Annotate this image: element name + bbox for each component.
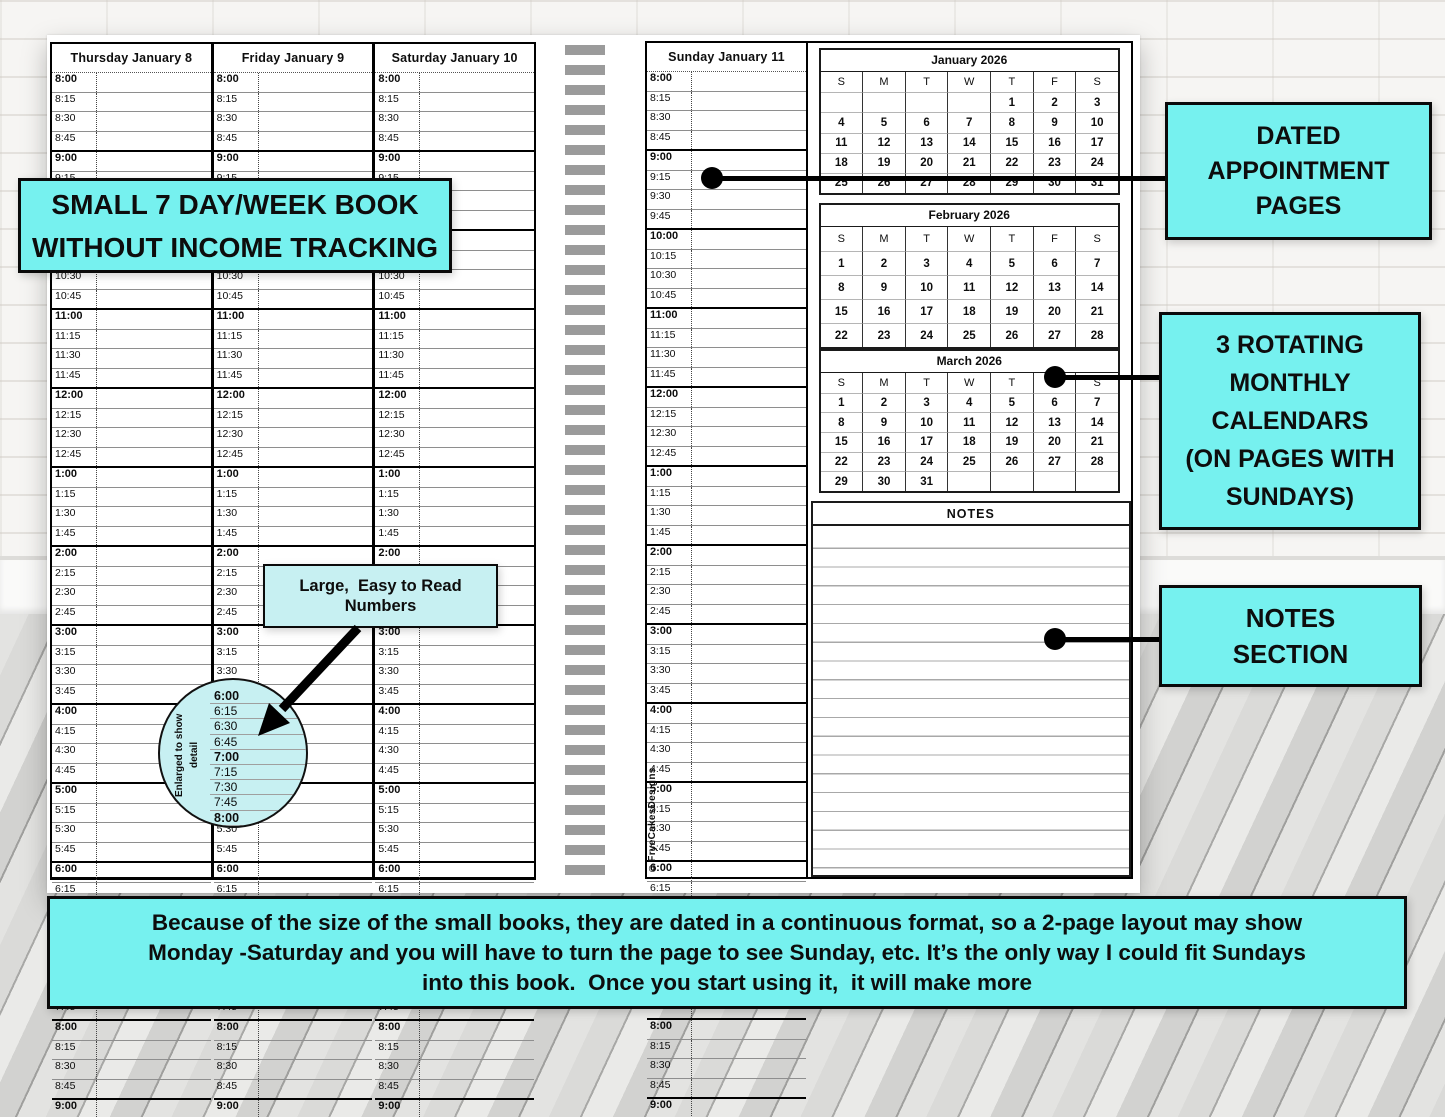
time-slot: 12:30 (375, 427, 534, 447)
time-label: 9:15 (647, 171, 692, 190)
calendar-day-cell: 5 (991, 393, 1034, 413)
time-slot: 8:30 (214, 1059, 373, 1079)
calendar-day-cell: 3 (906, 393, 949, 413)
time-slot: 5:45 (647, 841, 806, 861)
time-slot: 8:30 (375, 111, 534, 131)
time-slot: 1:00 (647, 465, 806, 486)
time-label: 3:30 (647, 664, 692, 683)
calendar-weekday-cell: T (991, 373, 1034, 393)
calendar-day-cell: 31 (906, 471, 949, 491)
time-label: 10:45 (647, 289, 692, 308)
time-slot: 8:45 (214, 131, 373, 151)
calendar-week-row: 1234567 (821, 393, 1119, 413)
time-label: 8:15 (375, 93, 420, 112)
magnifier-caption: Enlarged to show detail (172, 702, 206, 808)
calendar-day-cell: 2 (863, 393, 906, 413)
time-label: 8:15 (52, 93, 97, 112)
calendar-weekday-cell: S (821, 227, 864, 251)
time-label: 12:45 (647, 447, 692, 466)
calendar-january: January 2026 SMTWTFS12345678910111213141… (819, 48, 1121, 195)
time-slot: 5:30 (375, 822, 534, 842)
time-slot: 1:30 (375, 506, 534, 526)
calendar-day-cell: 4 (948, 251, 991, 275)
time-slot: 11:45 (647, 367, 806, 387)
calendar-day-cell: 7 (948, 112, 991, 132)
time-slot: 8:15 (52, 1040, 211, 1060)
time-label: 9:00 (52, 1100, 97, 1117)
time-slot: 11:45 (375, 368, 534, 388)
time-slot: 1:30 (52, 506, 211, 526)
calendar-weekday-cell: T (991, 227, 1034, 251)
time-slot: 5:45 (375, 842, 534, 862)
time-label: 1:15 (647, 487, 692, 506)
time-label: 1:15 (214, 488, 259, 507)
time-slot: 10:45 (52, 289, 211, 309)
calendar-day-cell: 5 (991, 251, 1034, 275)
time-slot: 8:00 (647, 72, 806, 91)
calendar-day-cell: 21 (948, 153, 991, 173)
time-label: 8:45 (647, 1079, 692, 1098)
time-slot: 8:15 (647, 91, 806, 111)
time-label: 10:45 (214, 290, 259, 309)
time-label: 1:45 (647, 526, 692, 545)
calendar-panel: January 2026 SMTWTFS12345678910111213141… (811, 43, 1132, 877)
time-slot: 12:15 (375, 408, 534, 428)
time-slot: 9:00 (647, 149, 806, 170)
calendar-day-cell: 26 (991, 452, 1034, 472)
calendar-day-cell: 22 (821, 323, 864, 347)
calendar-day-cell: 19 (863, 153, 906, 173)
calendar-day-cell: 20 (906, 153, 949, 173)
calendar-day-cell: 28 (1076, 323, 1118, 347)
time-slot: 5:45 (214, 842, 373, 862)
time-slot: 2:00 (647, 544, 806, 565)
time-slot: 3:00 (52, 624, 211, 645)
time-slot: 12:15 (214, 408, 373, 428)
time-label: 12:30 (214, 428, 259, 447)
calendar-week-row: 22232425262728 (821, 452, 1119, 472)
time-label: 8:00 (647, 1020, 692, 1039)
calendar-day-cell: 25 (948, 323, 991, 347)
time-label: 12:15 (214, 409, 259, 428)
time-slot: 9:45 (647, 209, 806, 229)
calendar-title: February 2026 (821, 205, 1119, 227)
calendar-day-cell: 6 (1034, 393, 1077, 413)
time-label: 11:15 (375, 330, 420, 349)
time-slot: 3:15 (375, 645, 534, 665)
bottom-banner: Because of the size of the small books, … (47, 896, 1407, 1009)
callout-text: (ON PAGES WITH (1185, 440, 1394, 478)
time-slot: 1:30 (647, 505, 806, 525)
time-label: 12:15 (647, 408, 692, 427)
time-label: 8:00 (52, 73, 97, 92)
time-slot: 11:15 (52, 329, 211, 349)
calendar-day-cell: 5 (863, 112, 906, 132)
time-slot: 8:30 (214, 111, 373, 131)
time-label: 11:45 (214, 369, 259, 388)
time-slot: 1:45 (375, 526, 534, 546)
time-label: 2:30 (647, 585, 692, 604)
time-slot: 9:00 (647, 1097, 806, 1117)
time-label: 10:45 (52, 290, 97, 309)
time-slot: 6:00 (375, 861, 534, 882)
time-label: 2:00 (647, 546, 692, 565)
time-slot: 11:45 (52, 368, 211, 388)
calendar-day-cell: 1 (821, 251, 864, 275)
time-label: 9:00 (647, 151, 692, 170)
time-label: 10:00 (647, 230, 692, 249)
time-label: 11:15 (214, 330, 259, 349)
time-slot: 10:15 (647, 249, 806, 269)
calendar-day-cell: 19 (991, 432, 1034, 452)
time-label: 5:45 (52, 843, 97, 862)
calendar-day-cell: 15 (821, 432, 864, 452)
calendar-day-cell: 15 (991, 133, 1034, 153)
calendar-day-cell: 23 (863, 452, 906, 472)
time-label: 11:00 (647, 309, 692, 328)
time-slot: 12:00 (375, 387, 534, 408)
banner-text: Because of the size of the small books, … (152, 908, 1302, 938)
arrow-pointer-icon (242, 616, 372, 748)
time-slot: 4:00 (647, 702, 806, 723)
calendar-day-cell: 23 (1034, 153, 1077, 173)
time-label: 4:15 (52, 725, 97, 744)
time-label: 1:30 (647, 506, 692, 525)
magnifier-time-row: 7:45 (210, 795, 306, 810)
time-slot: 8:15 (375, 1040, 534, 1060)
calendar-weekday-row: SMTWTFS (821, 227, 1119, 251)
time-slot: 3:30 (647, 663, 806, 683)
time-label: 4:45 (375, 764, 420, 783)
callout-text: Large, Easy to Read (299, 576, 461, 596)
time-label: 8:00 (214, 1021, 259, 1040)
time-slot: 4:45 (375, 763, 534, 783)
day-header: Saturday January 10 (375, 44, 534, 73)
time-slot: 10:45 (214, 289, 373, 309)
day-header: Thursday January 8 (52, 44, 211, 73)
calendar-day-cell: 27 (1034, 323, 1077, 347)
calendar-day-cell: 20 (1034, 432, 1077, 452)
calendar-weekday-cell: W (948, 373, 991, 393)
calendar-day-cell: 14 (1076, 275, 1118, 299)
time-label: 9:00 (214, 152, 259, 171)
time-label: 5:15 (52, 804, 97, 823)
time-label: 4:30 (52, 744, 97, 763)
time-label: 8:30 (375, 112, 420, 131)
time-label: 10:30 (647, 269, 692, 288)
right-page: Sunday January 11 8:008:158:308:459:009:… (645, 41, 1133, 879)
time-slot: 12:00 (52, 387, 211, 408)
time-label: 12:45 (52, 448, 97, 467)
time-label: 11:00 (214, 310, 259, 329)
calendar-day-cell: 11 (821, 133, 864, 153)
time-label: 10:45 (375, 290, 420, 309)
time-label: 11:45 (52, 369, 97, 388)
time-slot: 1:45 (214, 526, 373, 546)
calendar-day-cell: 17 (1076, 133, 1118, 153)
calendar-day-cell: 6 (906, 112, 949, 132)
calendar-day-cell (948, 92, 991, 112)
calendar-week-row: 15161718192021 (821, 299, 1119, 323)
time-label: 1:15 (375, 488, 420, 507)
time-slot: 8:00 (647, 1018, 806, 1039)
callout-line-calendars (1055, 375, 1159, 380)
time-label: 5:45 (375, 843, 420, 862)
time-label: 8:45 (214, 1080, 259, 1099)
time-label: 12:15 (52, 409, 97, 428)
time-slot: 3:45 (375, 684, 534, 704)
time-slot: 12:45 (647, 446, 806, 466)
time-label: 2:15 (647, 566, 692, 585)
time-label: 1:00 (52, 468, 97, 487)
time-label: 8:30 (52, 1060, 97, 1079)
time-label: 9:00 (214, 1100, 259, 1117)
time-slot: 1:00 (375, 466, 534, 487)
calendar-weekday-row: SMTWTFS (821, 72, 1119, 92)
time-label: 2:00 (214, 547, 259, 566)
time-slot: 8:15 (375, 92, 534, 112)
calendar-day-cell: 9 (863, 412, 906, 432)
time-label: 4:15 (647, 724, 692, 743)
calendar-day-cell: 18 (948, 299, 991, 323)
time-slot: 12:45 (52, 447, 211, 467)
time-slot: 11:30 (52, 348, 211, 368)
time-slot: 12:15 (647, 407, 806, 427)
banner-text: into this book. Once you start using it,… (422, 968, 1032, 998)
time-slot: 2:45 (52, 605, 211, 625)
time-slot: 8:30 (52, 1059, 211, 1079)
time-label: 8:45 (214, 132, 259, 151)
time-label: 2:00 (375, 547, 420, 566)
calendar-weekday-cell: M (863, 227, 906, 251)
calendar-day-cell (948, 471, 991, 491)
calendar-day-cell: 7 (1076, 393, 1118, 413)
time-label: 1:00 (214, 468, 259, 487)
calendar-day-cell: 10 (906, 275, 949, 299)
time-slot: 11:15 (214, 329, 373, 349)
time-slot: 12:30 (214, 427, 373, 447)
time-label: 8:45 (52, 1080, 97, 1099)
time-label: 4:30 (647, 743, 692, 762)
time-label: 5:00 (375, 784, 420, 803)
calendar-day-cell: 21 (1076, 299, 1118, 323)
time-slot: 8:30 (375, 1059, 534, 1079)
calendar-day-cell (863, 92, 906, 112)
time-slot: 8:00 (375, 1019, 534, 1040)
time-slot: 5:00 (375, 782, 534, 803)
time-label: 11:45 (647, 368, 692, 387)
time-slot: 1:15 (214, 487, 373, 507)
time-slot: 10:00 (647, 228, 806, 249)
time-label: 11:30 (52, 349, 97, 368)
spiral-binding (565, 45, 605, 881)
callout-text: PAGES (1256, 189, 1342, 224)
calendar-day-cell: 24 (1076, 153, 1118, 173)
time-slot: 8:00 (52, 1019, 211, 1040)
calendar-day-cell: 16 (1034, 133, 1077, 153)
calendar-weekday-cell: T (906, 373, 949, 393)
calendar-week-row: 22232425262728 (821, 323, 1119, 347)
time-slot: 12:00 (647, 386, 806, 407)
time-slot: 8:15 (214, 1040, 373, 1060)
time-slot: 3:45 (647, 683, 806, 703)
callout-text: SUNDAYS) (1226, 478, 1354, 516)
time-label: 4:15 (375, 725, 420, 744)
time-slot: 12:00 (214, 387, 373, 408)
time-label: 8:45 (647, 131, 692, 150)
calendar-day-cell: 8 (991, 112, 1034, 132)
callout-notes-section: NOTES SECTION (1159, 585, 1422, 687)
callout-text: Numbers (345, 596, 417, 616)
time-label: 4:00 (375, 705, 420, 724)
time-slot: 8:15 (214, 92, 373, 112)
calendar-day-cell: 26 (991, 323, 1034, 347)
time-slot: 8:30 (52, 111, 211, 131)
time-slot: 8:45 (52, 131, 211, 151)
callout-text: CALENDARS (1212, 402, 1369, 440)
calendar-weekday-cell: F (1034, 72, 1077, 92)
time-slot: 12:30 (647, 426, 806, 446)
time-label: 12:45 (375, 448, 420, 467)
calendar-day-cell: 27 (1034, 452, 1077, 472)
time-label: 3:15 (647, 645, 692, 664)
time-label: 9:00 (375, 1100, 420, 1117)
calendar-weekday-cell: T (991, 72, 1034, 92)
time-label: 8:15 (647, 1040, 692, 1059)
calendar-weekday-cell: M (863, 373, 906, 393)
time-slot: 5:30 (647, 821, 806, 841)
time-label: 8:00 (375, 1021, 420, 1040)
magnifier-time-row: 8:00 (210, 811, 306, 826)
notes-title: NOTES (813, 503, 1130, 526)
time-slot: 8:30 (647, 110, 806, 130)
time-slot: 9:00 (214, 150, 373, 171)
calendar-day-cell: 11 (948, 412, 991, 432)
calendar-week-row: 1234567 (821, 251, 1119, 275)
time-label: 4:30 (375, 744, 420, 763)
calendar-day-cell: 9 (863, 275, 906, 299)
time-slot: 11:00 (52, 308, 211, 329)
time-label: 6:00 (214, 863, 259, 882)
time-label: 9:45 (647, 210, 692, 229)
time-label: 12:15 (375, 409, 420, 428)
time-slot: 2:15 (52, 566, 211, 586)
time-label: 1:45 (375, 527, 420, 546)
calendar-february: February 2026 SMTWTFS1234567891011121314… (819, 203, 1121, 349)
time-label: 8:45 (52, 132, 97, 151)
callout-rotating-calendars: 3 ROTATING MONTHLY CALENDARS (ON PAGES W… (1159, 312, 1421, 530)
calendar-day-cell: 19 (991, 299, 1034, 323)
time-label: 4:45 (52, 764, 97, 783)
calendar-weekday-cell: S (821, 373, 864, 393)
calendar-week-row: 891011121314 (821, 275, 1119, 299)
time-label: 6:00 (52, 863, 97, 882)
time-label: 3:00 (52, 626, 97, 645)
calendar-day-cell: 18 (948, 432, 991, 452)
time-slot: 8:45 (214, 1079, 373, 1099)
time-label: 12:00 (375, 389, 420, 408)
time-label: 8:30 (647, 111, 692, 130)
calendar-day-cell: 12 (863, 133, 906, 153)
time-label: 8:00 (52, 1021, 97, 1040)
time-label: 8:45 (375, 132, 420, 151)
banner-text: Monday -Saturday and you will have to tu… (148, 938, 1306, 968)
time-slot: 9:00 (52, 1098, 211, 1117)
time-label: 9:00 (647, 1099, 692, 1117)
calendar-day-cell: 7 (1076, 251, 1118, 275)
notes-section: NOTES (811, 501, 1132, 877)
calendar-day-cell: 4 (948, 393, 991, 413)
calendar-title: March 2026 (821, 351, 1119, 373)
callout-text: SECTION (1233, 636, 1349, 672)
time-slot: 4:30 (375, 743, 534, 763)
time-slot: 12:45 (214, 447, 373, 467)
callout-line-appointments (712, 176, 1165, 181)
time-slot: 1:15 (52, 487, 211, 507)
callout-text: APPOINTMENT (1208, 154, 1390, 189)
day-column-saturday: Saturday January 10 8:008:158:308:459:00… (372, 44, 534, 877)
time-slot: 2:15 (647, 565, 806, 585)
calendar-day-cell: 10 (1076, 112, 1118, 132)
calendar-day-cell: 17 (906, 299, 949, 323)
calendar-day-cell: 16 (863, 299, 906, 323)
time-label: 3:45 (647, 684, 692, 703)
time-slot: 9:00 (375, 150, 534, 171)
time-label: 2:30 (214, 586, 259, 605)
time-label: 4:00 (647, 704, 692, 723)
calendar-day-cell: 21 (1076, 432, 1118, 452)
calendar-week-row: 11121314151617 (821, 133, 1119, 153)
time-slot: 2:30 (647, 584, 806, 604)
time-slot: 9:00 (214, 1098, 373, 1117)
time-slot: 10:45 (647, 288, 806, 308)
time-slot: 3:15 (647, 644, 806, 664)
calendar-day-cell: 10 (906, 412, 949, 432)
time-slot: 8:45 (375, 1079, 534, 1099)
calendar-day-cell: 15 (821, 299, 864, 323)
time-slot: 3:30 (52, 664, 211, 684)
time-label: 2:15 (52, 567, 97, 586)
time-label: 11:15 (52, 330, 97, 349)
time-label: 3:30 (375, 665, 420, 684)
time-slot: 3:30 (375, 664, 534, 684)
calendar-day-cell: 3 (1076, 92, 1118, 112)
time-label: 12:00 (647, 388, 692, 407)
time-label: 12:30 (375, 428, 420, 447)
calendar-day-cell: 24 (906, 323, 949, 347)
time-label: 5:00 (52, 784, 97, 803)
time-slot: 5:15 (375, 803, 534, 823)
time-slot: 1:00 (214, 466, 373, 487)
time-slot: 1:30 (214, 506, 373, 526)
time-label: 11:00 (52, 310, 97, 329)
callout-text: MONTHLY (1229, 364, 1350, 402)
time-slot: 8:30 (647, 1058, 806, 1078)
time-label: 8:15 (214, 1041, 259, 1060)
time-slot: 11:00 (647, 307, 806, 328)
time-label: 3:00 (375, 626, 420, 645)
callout-text: DATED (1256, 119, 1340, 154)
calendar-week-row: 18192021222324 (821, 153, 1119, 173)
time-label: 8:00 (647, 72, 692, 91)
time-label: 2:30 (52, 586, 97, 605)
time-label: 12:00 (52, 389, 97, 408)
time-label: 5:30 (52, 823, 97, 842)
calendar-march: March 2026 SMTWTFS1234567891011121314151… (819, 349, 1121, 493)
time-label: 2:00 (52, 547, 97, 566)
magnifier-time-row: 7:15 (210, 765, 306, 780)
time-slot: 12:30 (52, 427, 211, 447)
